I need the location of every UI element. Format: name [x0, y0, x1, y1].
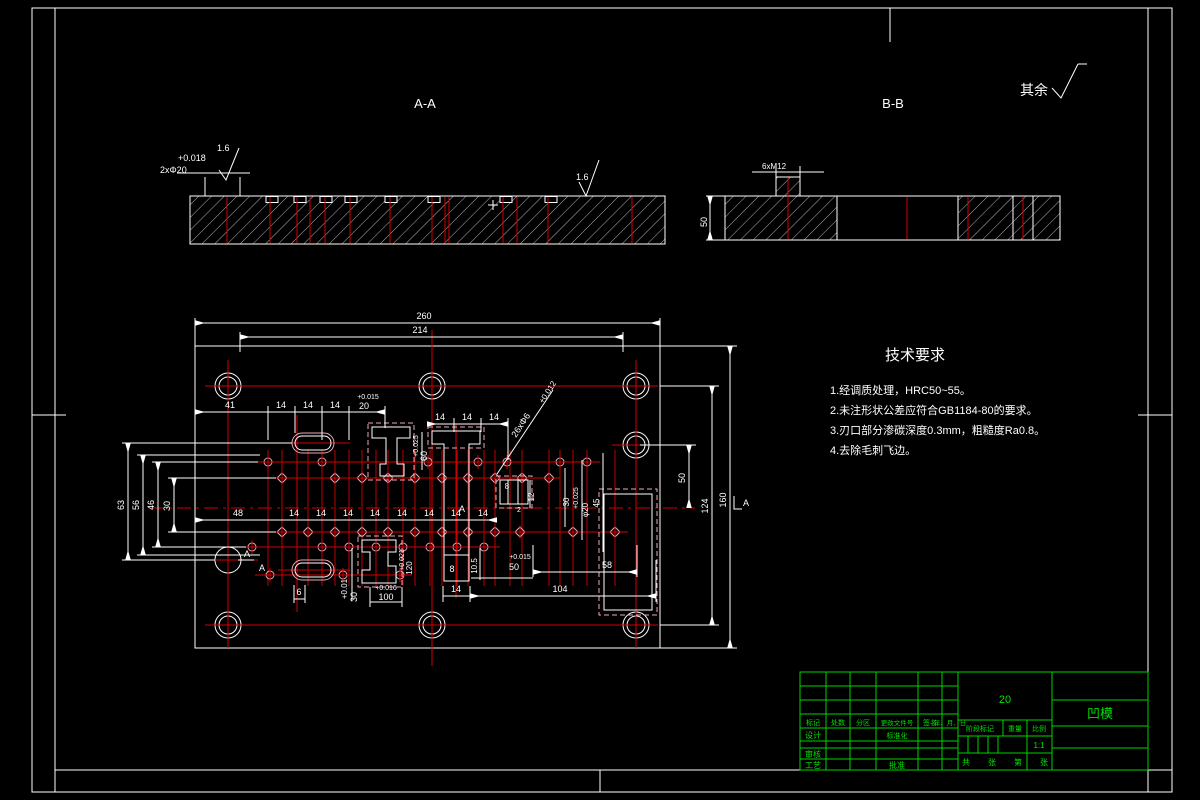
dim-41: 41 — [225, 400, 235, 410]
tb-check: 审核 — [805, 749, 821, 759]
tb-sheet-gong: 共 — [962, 758, 970, 767]
dim-l56: 56 — [131, 500, 141, 510]
tb-part-name: 凹模 — [1087, 706, 1113, 721]
dim-45: 45 — [592, 498, 601, 507]
tb-stage: 阶段标记 — [966, 724, 994, 733]
surface-finish-icon — [1052, 64, 1078, 98]
tb-sheet-di: 第 — [1014, 757, 1022, 767]
finish-value-2: 1.6 — [576, 172, 589, 182]
counterbore-notch — [266, 197, 278, 203]
counterbore-notch — [545, 197, 557, 203]
finish-mark-1: 1.6 — [217, 143, 239, 180]
dim-pitch: 14 — [316, 508, 326, 518]
dim-260: 260 — [416, 311, 431, 321]
section-mark-a1: A — [244, 549, 250, 559]
dim-8-punch: 8 — [505, 482, 510, 491]
dim-r50: 50 — [677, 473, 687, 483]
dim-10p5: 10.5 — [470, 558, 479, 574]
section-mark-a2: A — [259, 563, 265, 573]
dim-slot-20: 20 — [359, 401, 369, 411]
tb-col-count: 处数 — [831, 718, 845, 727]
counterbore-notch — [500, 197, 512, 203]
dim-214: 214 — [412, 325, 427, 335]
dim-2: 2 — [517, 507, 521, 514]
section-b-title: B-B — [882, 96, 904, 111]
dim-pitch: 14 — [424, 508, 434, 518]
dim-6: 6 — [296, 587, 301, 597]
dim-pitch: 14 — [451, 584, 461, 594]
dim-pitch: 14 — [489, 412, 499, 422]
tb-col-mark: 标记 — [806, 718, 820, 727]
tech-req-item-3: 3.刃口部分渗碳深度0.3mm，粗糙度Ra0.8。 — [830, 423, 1045, 437]
tech-req-item-2: 2.未注形状公差应符合GB1184-80的要求。 — [830, 403, 1038, 417]
rest-note-label: 其余 — [1020, 82, 1048, 98]
dim-l46: 46 — [146, 500, 156, 510]
dim-fit-tol: +0.015 — [509, 554, 531, 561]
drawing-frame — [32, 8, 1172, 792]
tb-col-date: 年、月、日 — [934, 718, 967, 727]
dim-pitch: 14 — [478, 508, 488, 518]
technical-requirements: 技术要求 1.经调质处理，HRC50~55。 2.未注形状公差应符合GB1184… — [830, 347, 1045, 457]
punch-cutout-small — [496, 476, 532, 508]
plan-view: +0.012 26xΦ6 260 214 50 124 160 63 56 — [116, 311, 749, 666]
dim-r160: 160 — [718, 492, 728, 507]
counterbore-notch — [428, 197, 440, 203]
tech-req-item-4: 4.去除毛刺飞边。 — [830, 443, 916, 457]
dim-58: 58 — [602, 560, 612, 570]
section-mark-a4: A — [743, 498, 749, 508]
dim-fit-50: 50 — [509, 562, 519, 572]
dim-hole: φ20 — [581, 502, 590, 517]
dim-pitch: 14 — [397, 508, 407, 518]
dim-104: 104 — [552, 584, 567, 594]
tb-sheet-zhang2: 张 — [1040, 758, 1048, 767]
dim-key-tol: +0.016 — [375, 585, 397, 592]
dim-hole-tol: +0.025 — [573, 487, 580, 509]
dim-bb-height: 50 — [699, 217, 709, 227]
tb-process: 工艺 — [805, 761, 821, 770]
dim-slot-tol: +0.015 — [357, 394, 379, 401]
dim-r124: 124 — [700, 498, 710, 513]
finish-value-1: 1.6 — [217, 143, 230, 153]
leader-label: 26xΦ6 — [509, 411, 532, 439]
tb-col-docno: 更改文件号 — [881, 718, 914, 727]
dim-bb-thread: 6xM12 — [762, 162, 787, 171]
tb-design: 设计 — [805, 730, 821, 740]
dim-pitch: 14 — [462, 412, 472, 422]
tb-approve: 批准 — [889, 760, 905, 770]
tb-weight: 重量 — [1008, 725, 1022, 733]
section-mark-a3: A — [459, 504, 465, 514]
dim-pitch: 14 — [343, 508, 353, 518]
tb-standard: 标准化 — [887, 731, 908, 740]
dim-pitch: 14 — [289, 508, 299, 518]
tb-col-zone: 分区 — [856, 718, 870, 727]
tech-req-title: 技术要求 — [885, 347, 945, 364]
tb-sheet-zhang1: 张 — [988, 758, 996, 767]
dim-8-stem: 8 — [449, 564, 454, 574]
punch-cutout-upper — [372, 427, 410, 476]
finish-mark-2: 1.6 — [576, 160, 599, 196]
dim-12: 12 — [527, 492, 536, 501]
title-block: 标记 处数 分区 更改文件号 签名 年、月、日 设计 标准化 审核 工艺 批准 … — [800, 672, 1148, 770]
dim-k2: 120 — [405, 561, 414, 575]
dim-pitch: 14 — [435, 412, 445, 422]
punch-cutout-lower — [362, 540, 396, 583]
dim-v60: 60 — [419, 451, 429, 461]
dim-cut-tol: +0.01 — [340, 578, 349, 599]
dim-aa-holes: 2xΦ20 — [160, 165, 187, 175]
tb-scale: 比例 — [1032, 724, 1046, 733]
dim-l30: 30 — [162, 501, 172, 511]
dim-key: 100 — [378, 592, 393, 602]
dim-pitch: 14 — [330, 400, 340, 410]
counterbore-notch — [385, 197, 397, 203]
tb-material: 20 — [999, 694, 1011, 706]
leader-tol: +0.012 — [537, 379, 558, 405]
section-a-view: +0.018 2xΦ20 1.6 1.6 — [160, 143, 665, 244]
dim-pitch: 14 — [370, 508, 380, 518]
counterbore-notch — [320, 197, 332, 203]
drawing-canvas: A-A B-B 其余 +0.018 2xΦ20 1.6 1.6 — [0, 0, 1200, 800]
counterbore-notch — [345, 197, 357, 203]
dim-48: 48 — [233, 508, 243, 518]
tb-scale-value: 1:1 — [1033, 741, 1045, 750]
dim-l63: 63 — [116, 500, 126, 510]
cad-drawing-sheet: A-A B-B 其余 +0.018 2xΦ20 1.6 1.6 — [0, 0, 1200, 800]
section-b-view: 6xM12 50 — [699, 162, 1060, 240]
dim-pitch: 14 — [303, 400, 313, 410]
section-a-title: A-A — [414, 96, 436, 111]
dim-aa-tol: +0.018 — [178, 153, 206, 163]
dim-30b: 30 — [562, 497, 571, 506]
dim-pitch: 14 — [276, 400, 286, 410]
tech-req-item-1: 1.经调质处理，HRC50~55。 — [830, 384, 971, 397]
dim-cut-30: 30 — [349, 592, 359, 602]
rest-surface-finish: 其余 — [1020, 64, 1087, 98]
counterbore-notch — [294, 197, 306, 203]
